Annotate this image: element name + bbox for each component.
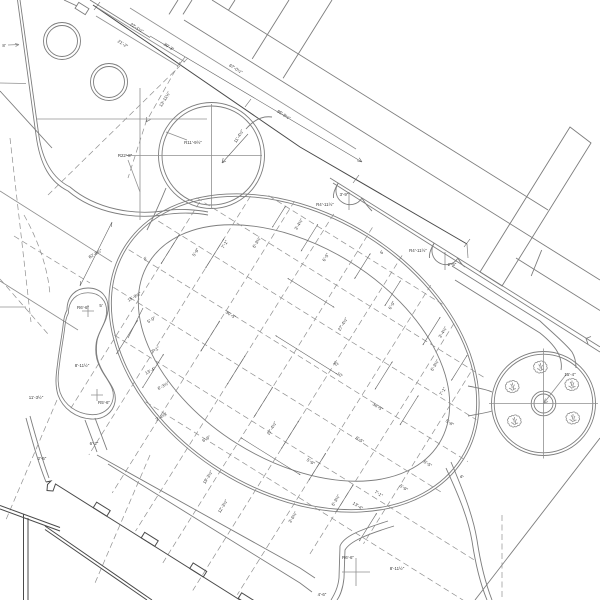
svg-text:R4'-11½": R4'-11½": [316, 202, 334, 207]
svg-text:3'-9": 3'-9": [340, 192, 349, 197]
svg-text:4'-6": 4'-6": [318, 592, 327, 597]
svg-text:6'-2": 6'-2": [90, 441, 99, 446]
svg-text:R6'-6": R6'-6": [77, 305, 89, 310]
svg-text:5': 5': [99, 303, 102, 308]
svg-text:8'-11½": 8'-11½": [390, 566, 405, 571]
svg-text:2'-5": 2'-5": [38, 456, 47, 461]
svg-text:8'-11½": 8'-11½": [75, 363, 90, 368]
svg-text:15'-4": 15'-4": [564, 372, 576, 377]
svg-text:R4'-11½": R4'-11½": [409, 248, 427, 253]
svg-text:8': 8': [2, 43, 5, 48]
svg-text:R22'-8": R22'-8": [118, 153, 133, 158]
svg-text:R6'-6": R6'-6": [342, 555, 354, 560]
svg-text:R5'-6": R5'-6": [98, 400, 110, 405]
svg-text:11'-3½": 11'-3½": [29, 395, 44, 400]
svg-text:2'-5": 2'-5": [448, 262, 457, 267]
svg-text:R11'-9½": R11'-9½": [184, 140, 202, 145]
